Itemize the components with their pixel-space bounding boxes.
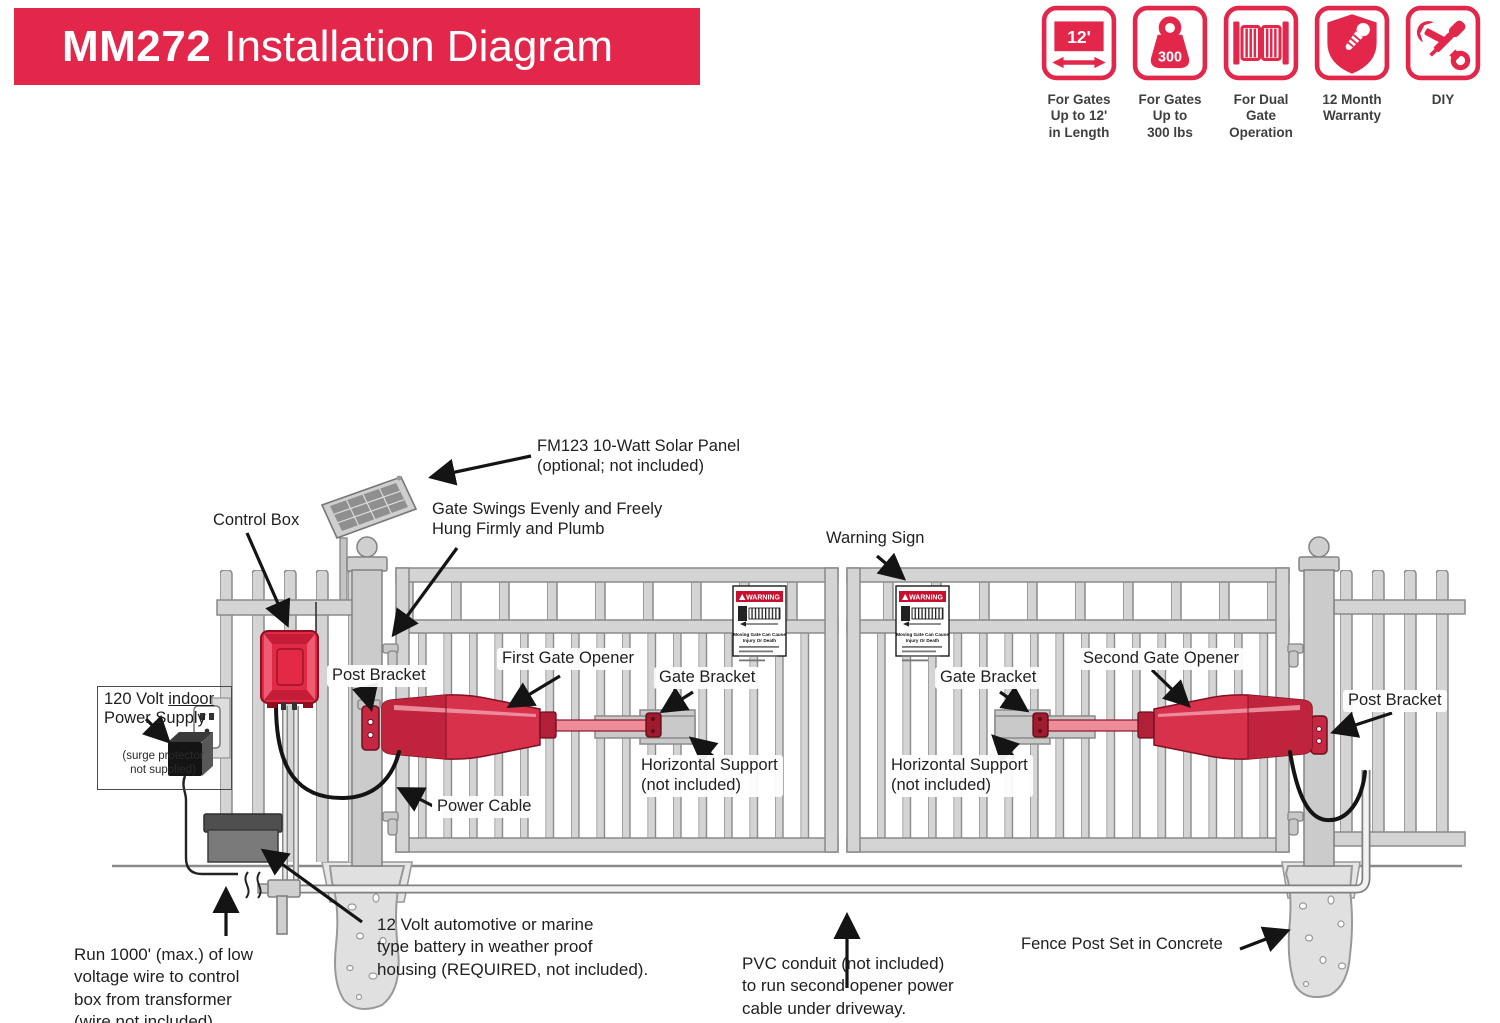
warning-sign-right: WARNING Moving Gate Can Cause Injury Or … [896,586,949,661]
post-bracket-right [1311,716,1327,754]
first-gate-opener-label: First Gate Opener [497,648,639,670]
solar-panel [322,476,416,538]
warning-sign-header: WARNING [746,595,780,602]
second-gate-opener-label: Second Gate Opener [1078,648,1244,670]
arrow-solar-panel [432,456,531,477]
power-cable-label: Power Cable [432,796,536,818]
warning-sign-left: WARNING Moving Gate Can Cause Injury Or … [733,586,786,661]
gate-swing-label: Gate Swings Evenly and Freely Hung Firml… [432,500,662,540]
solar-panel-label: FM123 10-Watt Solar Panel (optional; not… [537,437,740,477]
installation-diagram-page: MM272 Installation Diagram 12' For Gates… [0,0,1500,1023]
gate-bracket-left-label: Gate Bracket [654,667,760,689]
post-bracket-right-label: Post Bracket [1343,690,1447,712]
power-supply-note: (surge protector not supplied) [99,749,227,778]
opener-rod [556,720,648,731]
battery-label: 12 Volt automotive or marine type batter… [377,914,648,981]
gate-bracket-left [646,713,661,737]
arrow-fence-post [1240,931,1287,949]
power-supply-line1: 120 Volt [104,690,168,708]
warning-sign-header: WARNING [909,595,943,602]
warning-sign-line2: Injury Or Death [743,638,776,643]
concrete-footing-right [1282,862,1360,997]
warning-sign-line1: Moving Gate Can Cause [733,632,786,637]
warning-sign-label: Warning Sign [826,529,924,549]
run-wire-label: Run 1000' (max.) of low voltage wire to … [74,944,253,1023]
power-supply-title: 120 Volt indoor Power Supply [104,690,214,728]
gate-bracket-right-label: Gate Bracket [935,667,1041,689]
horizontal-support-left-label: Horizontal Support (not included) [636,755,783,797]
warning-sign-line2: Injury Or Death [906,638,939,643]
power-supply-indoor: indoor [168,690,214,708]
gate-bracket-right [1033,713,1048,737]
post-bracket-left-label: Post Bracket [327,665,431,687]
opener-rod [1048,720,1140,731]
power-supply-line2: Power Supply [104,709,214,728]
pvc-conduit-label: PVC conduit (not included) to run second… [742,953,954,1020]
fence-post-label: Fence Post Set in Concrete [1021,935,1223,955]
conduit-tee-fitting [258,880,300,934]
control-box-label: Control Box [213,511,299,531]
warning-sign-line1: Moving Gate Can Cause [896,632,949,637]
horizontal-support-right-label: Horizontal Support (not included) [886,755,1033,797]
post-bracket-left [362,706,379,750]
